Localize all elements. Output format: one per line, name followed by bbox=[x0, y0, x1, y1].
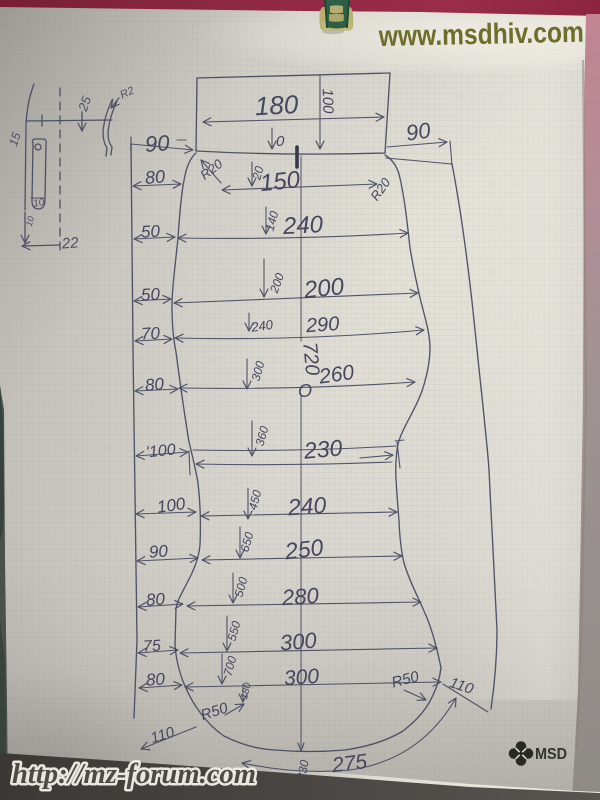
svg-text:290: 290 bbox=[304, 313, 340, 337]
svg-text:50: 50 bbox=[140, 222, 160, 242]
svg-text:http://mz-forum.com: http://mz-forum.com bbox=[12, 759, 256, 790]
svg-text:90: 90 bbox=[148, 541, 169, 561]
svg-text:www.msdhiv.com: www.msdhiv.com bbox=[378, 17, 584, 53]
svg-text:180: 180 bbox=[254, 89, 299, 121]
svg-text:80: 80 bbox=[144, 374, 165, 395]
svg-text:300: 300 bbox=[283, 665, 320, 690]
svg-text:280: 280 bbox=[280, 583, 320, 611]
svg-text:75: 75 bbox=[142, 637, 161, 655]
svg-text:240: 240 bbox=[286, 492, 327, 521]
svg-text:90: 90 bbox=[404, 117, 432, 145]
svg-text:300: 300 bbox=[279, 627, 319, 655]
svg-text:80: 80 bbox=[145, 589, 166, 609]
svg-text:70: 70 bbox=[140, 324, 160, 344]
svg-text:250: 250 bbox=[282, 534, 324, 565]
svg-text:80: 80 bbox=[145, 669, 166, 689]
svg-text:O: O bbox=[298, 381, 312, 401]
svg-text:200: 200 bbox=[302, 273, 346, 304]
svg-text:90: 90 bbox=[144, 130, 171, 157]
svg-text:'100: '100 bbox=[145, 441, 176, 461]
svg-text:22: 22 bbox=[60, 234, 80, 253]
svg-text:720: 720 bbox=[298, 341, 323, 376]
svg-text:230: 230 bbox=[302, 434, 344, 463]
svg-text:MSD: MSD bbox=[535, 746, 567, 763]
svg-text:100: 100 bbox=[319, 88, 337, 114]
svg-text:50: 50 bbox=[140, 285, 160, 305]
svg-text:0: 0 bbox=[276, 133, 285, 150]
svg-text:80: 80 bbox=[144, 166, 166, 188]
svg-text:275: 275 bbox=[330, 750, 369, 777]
svg-text:240: 240 bbox=[281, 211, 324, 240]
svg-text:100: 100 bbox=[156, 494, 187, 517]
